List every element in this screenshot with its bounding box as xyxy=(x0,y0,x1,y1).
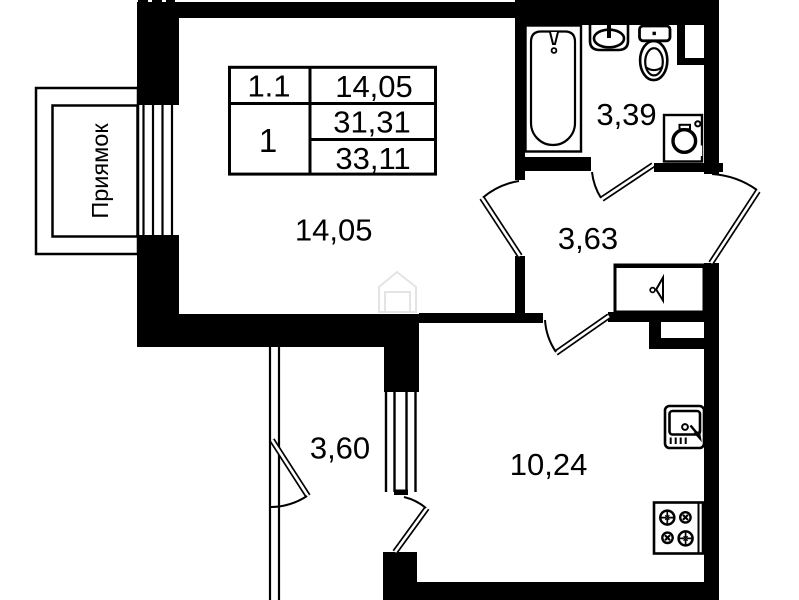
svg-text:14,05: 14,05 xyxy=(335,69,413,104)
svg-text:1.1: 1.1 xyxy=(247,69,290,104)
svg-text:1: 1 xyxy=(259,122,277,159)
svg-text:31,31: 31,31 xyxy=(333,105,411,140)
svg-text:3,60: 3,60 xyxy=(310,431,370,466)
svg-text:14,05: 14,05 xyxy=(295,213,373,248)
svg-text:3,39: 3,39 xyxy=(596,97,656,132)
svg-text:Приямок: Приямок xyxy=(87,123,113,219)
svg-text:10,24: 10,24 xyxy=(510,447,588,482)
svg-text:33,11: 33,11 xyxy=(335,141,410,176)
svg-text:3,63: 3,63 xyxy=(558,221,618,256)
